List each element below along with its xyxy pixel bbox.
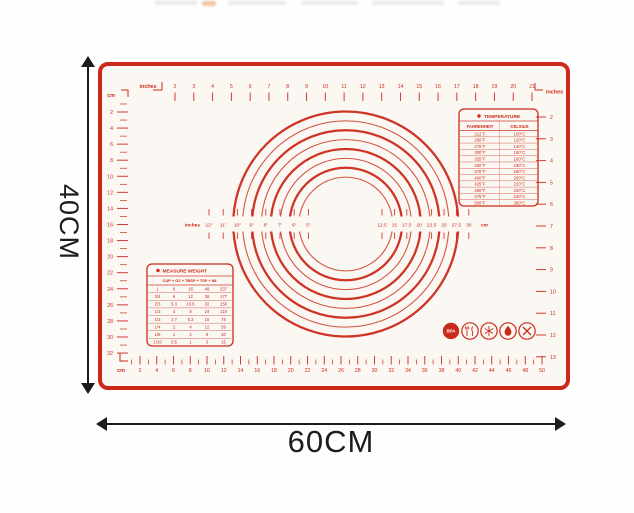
bottom-ruler-number: 4 [155, 368, 158, 374]
top-ruler-number: 20 [510, 84, 516, 90]
bullet-icon [477, 114, 480, 117]
gauge-inch-label: 9" [249, 223, 254, 229]
top-ruler-number: 7 [268, 84, 271, 90]
bottom-ruler-number: 42 [472, 368, 478, 374]
gauge-inch-label: 5" [306, 223, 311, 229]
left-ruler-unit: cm [107, 93, 115, 99]
bottom-ruler-number: 20 [288, 368, 294, 374]
top-ruler-number: 6 [249, 84, 252, 90]
left-ruler-number: 26 [107, 303, 113, 309]
temp-c-value: 140°C [514, 144, 526, 149]
measure-cell: 2.7 [171, 317, 177, 322]
right-ruler-number: 4 [550, 159, 553, 165]
measure-cell: 12 [205, 324, 210, 329]
top-ruler-number: 18 [473, 84, 479, 90]
left-ruler: cm2468101214161820222426283032 [107, 90, 128, 357]
measure-cell: 8 [189, 309, 192, 314]
measure-cell: 2 [173, 324, 176, 329]
measure-cell: 118 [220, 309, 227, 314]
measure-cell: 1/8 [155, 332, 161, 337]
arrow-right-icon [555, 417, 566, 431]
measure-cell: 5.3 [171, 302, 177, 307]
gauge-cm-label: 30 [466, 223, 472, 229]
top-ruler-number: 4 [211, 84, 214, 90]
bottom-ruler-unit: cm [117, 368, 125, 374]
corner-mark [523, 327, 531, 335]
temp-c-value: 160°C [514, 156, 526, 161]
bottom-ruler-number: 10 [204, 368, 210, 374]
corner-mark [485, 326, 494, 336]
gauge-inch-label: 7" [278, 223, 283, 229]
left-ruler-number: 2 [110, 110, 113, 116]
temp-c-value: 240°C [514, 194, 526, 199]
top-ruler-number: 21 [529, 84, 535, 90]
measure-cell: 0.5 [171, 340, 177, 345]
measure-weight-table: MEASURE WEIGHTCUP + OZ + TBSP + TSP + ML… [147, 264, 233, 346]
gauge-cm-label: 12.5 [377, 223, 387, 229]
measure-cell: 15 [221, 340, 226, 345]
corner-mark [465, 327, 472, 337]
right-ruler-number: 10 [550, 289, 556, 295]
gauge-inch-label: 10" [234, 223, 241, 229]
bottom-ruler-number: 30 [372, 368, 378, 374]
top-ruler-number: 17 [454, 84, 460, 90]
bottom-ruler-number: 6 [172, 368, 175, 374]
badge-circle [462, 323, 478, 339]
gauge-cm-label: 15 [392, 223, 398, 229]
measure-cell: 1 [156, 286, 159, 291]
circle-gauge: inches12"11"10"9"8"7"6"5"12.51517.52022.… [185, 112, 492, 337]
bottom-ruler-number: 36 [422, 368, 428, 374]
right-ruler-number: 11 [550, 311, 555, 317]
temp-f-value: 475°F [474, 194, 486, 199]
left-ruler-number: 4 [110, 126, 113, 132]
top-ruler-number: 13 [379, 84, 385, 90]
measure-cell: 79 [221, 317, 226, 322]
left-ruler-number: 28 [107, 319, 113, 325]
temp-f-value: 250°F [474, 138, 486, 143]
temp-col-header: FAHRENHEIT [467, 124, 494, 129]
bottom-ruler-number: 34 [405, 368, 411, 374]
no-cutting-badge [519, 323, 535, 339]
temp-c-value: 260°C [514, 200, 526, 205]
measure-table-title: MEASURE WEIGHT [163, 269, 208, 275]
bottom-ruler-number: 28 [355, 368, 361, 374]
temp-f-value: 275°F [474, 144, 486, 149]
right-ruler-number: 6 [550, 202, 553, 208]
temp-c-value: 200°C [514, 175, 526, 180]
measure-cell: 10.6 [186, 302, 195, 307]
temp-c-value: 230°C [514, 188, 526, 193]
left-ruler-number: 10 [107, 174, 113, 180]
width-dimension-label: 60CM [271, 424, 391, 460]
corner-mark [121, 90, 128, 97]
bottom-ruler-number: 26 [338, 368, 344, 374]
bottom-ruler-number: 18 [271, 368, 277, 374]
bottom-ruler-number: 48 [522, 368, 528, 374]
bpa-free-badge: BPA [443, 323, 459, 339]
measure-cell: 8 [173, 286, 176, 291]
top-ruler-number: 10 [322, 84, 328, 90]
top-ruler-number: 12 [360, 84, 366, 90]
temperature-table-title: TEMPERATURE [484, 114, 521, 120]
right-ruler-number: 3 [550, 137, 553, 143]
measure-cell: 30 [221, 332, 226, 337]
bullet-icon [156, 269, 159, 272]
measure-cell: 6 [206, 332, 209, 337]
gauge-right-unit: cm [481, 224, 488, 229]
height-dimension-label: 40CM [54, 178, 84, 266]
measure-cell: 177 [220, 294, 228, 299]
flame-icon [505, 326, 512, 336]
gauge-cm-label: 27.5 [452, 223, 462, 229]
temp-f-value: 425°F [474, 182, 486, 187]
gauge-left-unit: inches [185, 223, 201, 229]
measure-cell: 12 [188, 294, 193, 299]
top-ruler-number: 14 [398, 84, 404, 90]
right-ruler-number: 12 [550, 333, 556, 339]
top-ruler: inches23456789101112131415161718192021 [139, 82, 535, 101]
temp-c-value: 180°C [514, 163, 526, 168]
measure-cell: 32 [205, 302, 210, 307]
measure-cell: 158 [220, 302, 228, 307]
measure-col-header: CUP + OZ + TBSP + TSP + ML [163, 278, 218, 283]
gauge-cm-label: 25 [441, 223, 447, 229]
gauge-inch-label: 8" [264, 223, 269, 229]
measure-cell: 1/3 [155, 317, 161, 322]
left-ruler-number: 8 [110, 158, 113, 164]
bottom-ruler-number: 50 [539, 368, 545, 374]
left-ruler-number: 30 [107, 335, 113, 341]
right-ruler: inches2345678910111213 [535, 83, 563, 361]
top-ruler-number: 5 [230, 84, 233, 90]
measure-cell: 1 [173, 332, 176, 337]
certification-badges: BPA [443, 323, 535, 339]
right-ruler-unit: inches [546, 90, 563, 96]
bottom-ruler-number: 40 [455, 368, 461, 374]
left-ruler-number: 18 [107, 239, 113, 245]
measure-cell: 1 [189, 340, 192, 345]
temperature-table: TEMPERATUREFAHRENHEITCELSIUS212°F100°C25… [459, 109, 538, 206]
top-ruler-number: 19 [492, 84, 498, 90]
bottom-ruler-number: 38 [439, 368, 445, 374]
left-ruler-number: 14 [107, 206, 113, 212]
temp-f-value: 300°F [474, 150, 486, 155]
gauge-cm-label: 22.5 [427, 223, 437, 229]
measure-cell: 16 [205, 317, 210, 322]
temp-f-value: 350°F [474, 163, 486, 168]
measure-cell: 1/4 [155, 324, 161, 329]
bottom-ruler-number: 14 [238, 368, 244, 374]
temp-c-value: 120°C [514, 138, 526, 143]
temp-f-value: 500°F [474, 200, 486, 205]
bottom-ruler-number: 22 [305, 368, 311, 374]
temp-f-value: 325°F [474, 156, 486, 161]
left-ruler-number: 16 [107, 222, 113, 228]
heat-resistant-badge [500, 323, 516, 339]
arrow-line [87, 64, 89, 386]
measure-cell: 2/3 [155, 302, 161, 307]
right-ruler-number: 5 [550, 180, 553, 186]
top-ruler-number: 15 [416, 84, 422, 90]
measure-cell: 36 [205, 294, 210, 299]
bottom-ruler-number: 12 [221, 368, 227, 374]
product-image: inches23456789101112131415161718192021cm… [0, 0, 634, 513]
corner-mark [535, 83, 543, 90]
top-ruler-number: 9 [305, 84, 308, 90]
right-ruler-number: 9 [550, 268, 553, 274]
gauge-cm-label: 20 [417, 223, 423, 229]
top-ruler-number: 8 [286, 84, 289, 90]
bottom-ruler-number: 46 [506, 368, 512, 374]
bpa-free-label: BPA [447, 329, 457, 334]
temp-col-header: CELSIUS [510, 124, 528, 129]
arrow-down-icon [81, 383, 95, 394]
freezer-safe-badge [481, 323, 497, 339]
measure-cell: 4 [189, 324, 192, 329]
top-ruler-unit: inches [139, 84, 156, 90]
top-ruler-number: 11 [341, 84, 346, 90]
bottom-ruler-number: 8 [189, 368, 192, 374]
right-ruler-number: 2 [550, 115, 553, 121]
measure-cell: 24 [205, 309, 210, 314]
right-ruler-number: 8 [550, 246, 553, 252]
left-ruler-number: 24 [107, 287, 113, 293]
measure-cell: 59 [221, 324, 226, 329]
measure-cell: 48 [205, 286, 210, 291]
gauge-inch-label: 11" [220, 223, 227, 229]
temp-f-value: 400°F [474, 175, 486, 180]
temp-c-value: 220°C [514, 182, 526, 187]
gauge-inch-label: 12" [205, 223, 212, 229]
top-ruler-number: 2 [174, 84, 177, 90]
measure-cell: 6 [173, 294, 176, 299]
right-ruler-number: 7 [550, 224, 553, 230]
temp-c-value: 150°C [514, 150, 526, 155]
measure-cell: 237 [220, 286, 228, 291]
temp-f-value: 212°F [474, 131, 486, 136]
temp-f-value: 450°F [474, 188, 486, 193]
left-ruler-number: 20 [107, 255, 113, 261]
gauge-inch-label: 6" [292, 223, 297, 229]
left-ruler-number: 22 [107, 271, 113, 277]
bottom-ruler: cm24681012141618202224262830323436384042… [117, 353, 545, 374]
bottom-ruler-number: 32 [388, 368, 394, 374]
right-ruler-number: 13 [550, 355, 556, 361]
bottom-ruler-number: 44 [489, 368, 495, 374]
corner-mark [120, 353, 128, 361]
left-ruler-number: 32 [107, 351, 113, 357]
measure-cell: 3/4 [155, 294, 161, 299]
temp-f-value: 375°F [474, 169, 486, 174]
bottom-ruler-number: 24 [321, 368, 327, 374]
food-safe-badge [462, 323, 478, 339]
top-ruler-number: 16 [435, 84, 441, 90]
measure-cell: 16 [188, 286, 193, 291]
top-ruler-number: 3 [192, 84, 195, 90]
bottom-ruler-number: 16 [254, 368, 260, 374]
measure-cell: 3 [206, 340, 209, 345]
bottom-ruler-number: 2 [139, 368, 142, 374]
temp-c-value: 190°C [514, 169, 526, 174]
measure-cell: 1/16 [153, 340, 162, 345]
measure-cell: 2 [189, 332, 192, 337]
temp-c-value: 100°C [514, 131, 526, 136]
measure-cell: 4 [173, 309, 176, 314]
measure-cell: 1/2 [155, 309, 161, 314]
measure-cell: 5.3 [188, 317, 194, 322]
left-ruler-number: 12 [107, 190, 113, 196]
gauge-cm-label: 17.5 [402, 223, 412, 229]
left-ruler-number: 6 [110, 142, 113, 148]
